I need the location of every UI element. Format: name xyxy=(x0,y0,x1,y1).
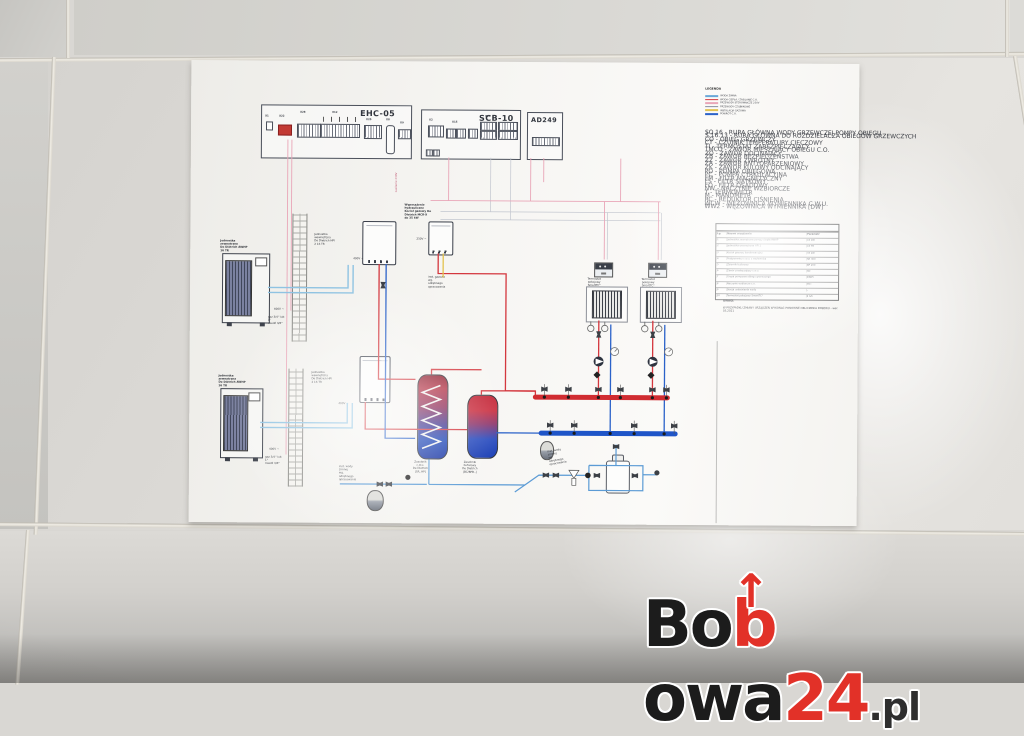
logo-text-pl: .pl xyxy=(868,685,920,729)
photo-of-heating-schematic: { "watermark":{"bo":"Bo","b_arrow":"b","… xyxy=(0,0,1024,683)
cold-manifold xyxy=(541,433,675,434)
logo-text-owa: owa xyxy=(643,662,783,736)
tile-top-middle xyxy=(74,0,1010,55)
logo-text-bo: Bo xyxy=(643,588,732,662)
tile-left xyxy=(0,59,48,529)
tile-top-right xyxy=(1010,0,1024,55)
hot-manifold xyxy=(535,397,667,398)
tile-top-left xyxy=(0,0,70,57)
poster-glare-1 xyxy=(620,123,901,365)
logo-text-24: 24 xyxy=(783,662,868,736)
logo-arrow-b: b↑ xyxy=(732,588,776,662)
up-arrow-icon: ↑ xyxy=(732,564,771,618)
laminated-schematic-poster: EHC-05 X1 X22 X28 X12 X25 X8 X9 SCB-10 X… xyxy=(189,60,860,526)
poster-glare-2 xyxy=(228,280,510,542)
watermark-logo: Bob↑owa24.pl xyxy=(643,588,1023,668)
grout-line-vertical-topright xyxy=(1005,0,1009,57)
grout-line-vertical-topleft xyxy=(66,0,70,58)
